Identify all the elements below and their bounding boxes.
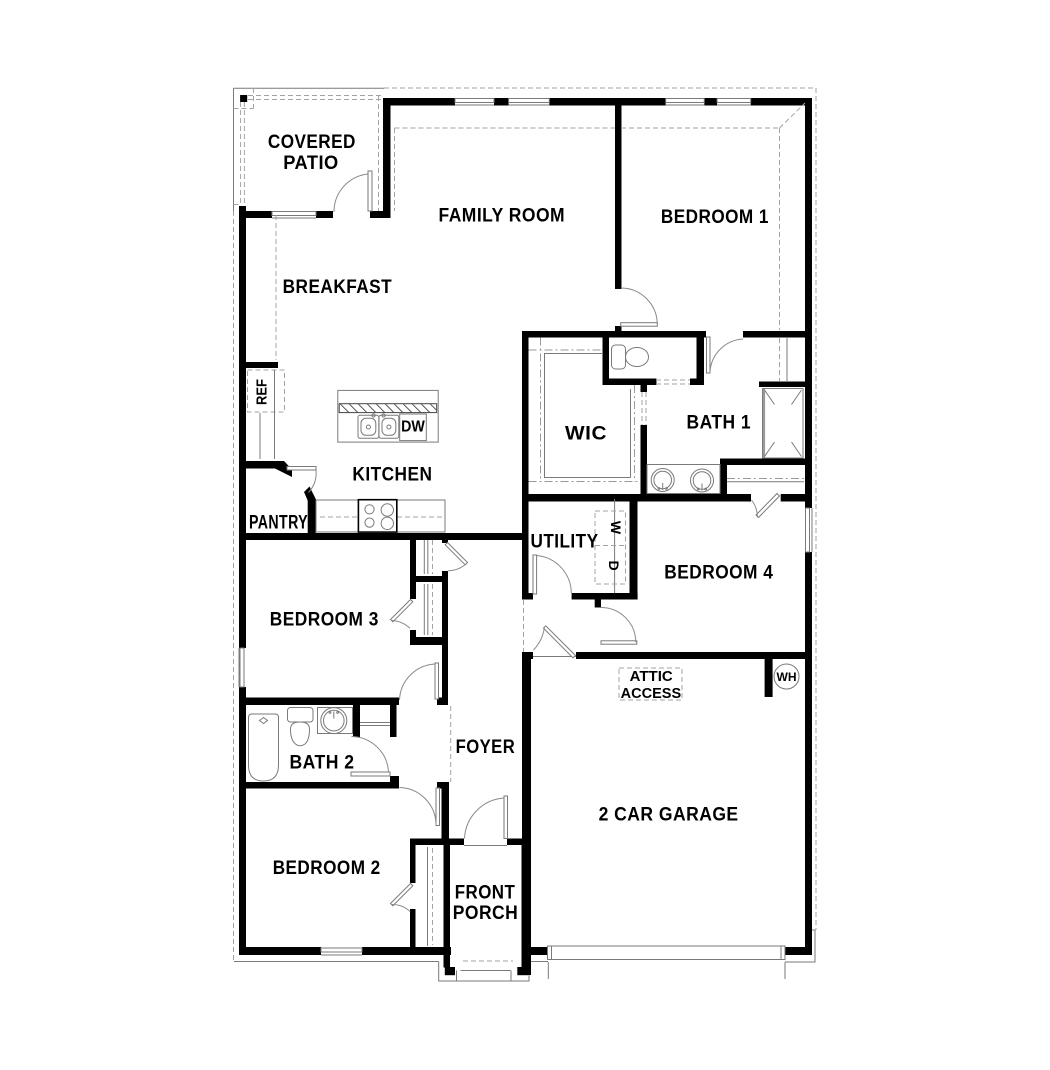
svg-text:2 CAR GARAGE: 2 CAR GARAGE xyxy=(599,805,739,826)
svg-text:BREAKFAST: BREAKFAST xyxy=(283,277,393,298)
svg-text:D: D xyxy=(606,560,622,570)
svg-text:BEDROOM 2: BEDROOM 2 xyxy=(273,858,381,879)
svg-text:REF: REF xyxy=(254,379,271,405)
svg-text:FOYER: FOYER xyxy=(456,737,516,758)
svg-text:BEDROOM 3: BEDROOM 3 xyxy=(270,609,379,630)
svg-text:W: W xyxy=(608,521,624,535)
svg-text:FRONT: FRONT xyxy=(455,883,516,904)
svg-text:UTILITY: UTILITY xyxy=(531,532,599,553)
svg-text:WIC: WIC xyxy=(565,424,607,445)
svg-text:DW: DW xyxy=(401,419,425,436)
svg-text:ACCESS: ACCESS xyxy=(621,686,682,702)
svg-text:BATH 1: BATH 1 xyxy=(687,413,752,434)
svg-text:KITCHEN: KITCHEN xyxy=(352,465,432,486)
svg-text:BATH 2: BATH 2 xyxy=(290,753,355,774)
svg-text:PORCH: PORCH xyxy=(453,903,519,924)
svg-text:PANTRY: PANTRY xyxy=(249,512,308,533)
svg-text:ATTIC: ATTIC xyxy=(630,669,674,685)
svg-text:BEDROOM 1: BEDROOM 1 xyxy=(661,207,769,228)
svg-text:PATIO: PATIO xyxy=(283,153,339,174)
svg-text:FAMILY ROOM: FAMILY ROOM xyxy=(439,206,566,227)
svg-text:COVERED: COVERED xyxy=(268,132,356,153)
svg-text:WH: WH xyxy=(777,670,797,684)
svg-text:BEDROOM 4: BEDROOM 4 xyxy=(664,563,773,584)
